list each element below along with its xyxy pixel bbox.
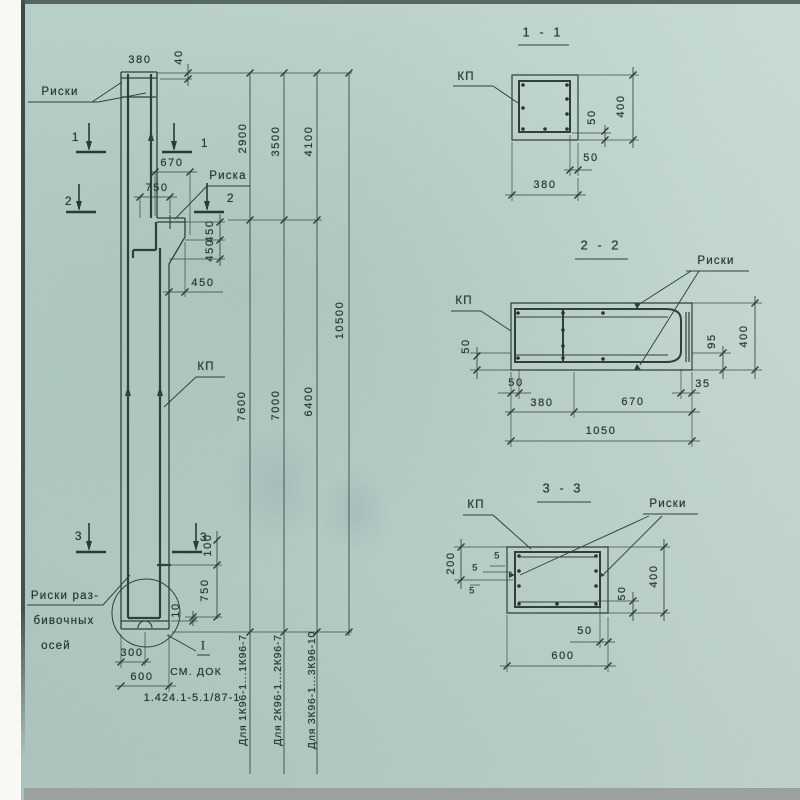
applicability-2: Для 2К96-1...2К96-7 xyxy=(272,634,284,746)
kp-label-1-1: КП xyxy=(457,71,474,83)
cut-mark-1-right: 1 xyxy=(201,136,209,150)
dim-2-2-height: 400 xyxy=(738,324,750,347)
doc-series-ref: 1.424.1-5.1/87-1 xyxy=(144,692,241,704)
dim-base-gap: 10 xyxy=(170,602,182,617)
dim-3-3-cover-right: 50 xyxy=(616,586,628,601)
dim-base-mark: 750 xyxy=(199,578,211,601)
cut-mark-1-left: 1 xyxy=(72,130,80,144)
kp-label-2-2: КП xyxy=(455,295,472,307)
corbel-riska-cross xyxy=(163,215,177,229)
dim-3-3-off-1: 5 xyxy=(494,551,500,562)
riska-notches-2-2 xyxy=(634,303,641,370)
dim-upper-2: 3500 xyxy=(270,126,282,157)
rebar-dots-3-3 xyxy=(517,554,598,606)
dim-total-length: 10500 xyxy=(334,301,346,340)
cut-mark-2-right: 2 xyxy=(227,191,235,205)
dim-base-mark-offset: 100 xyxy=(202,533,214,556)
axes-note-line3: осей xyxy=(41,640,71,652)
dim-base-half: 300 xyxy=(120,647,143,659)
section-1-1-title: 1 - 1 xyxy=(522,25,563,40)
dim-corbel-mark: 750 xyxy=(145,182,168,194)
dim-2-2-cover-bottom: 50 xyxy=(508,377,523,389)
section-3-3 xyxy=(507,547,608,613)
dim-3-3-width: 600 xyxy=(551,650,574,662)
cut-mark-3-left: 3 xyxy=(75,529,83,543)
drawing-linework xyxy=(0,0,800,800)
cut-mark-strokes xyxy=(79,123,207,549)
dim-3-3-off-3: 5 xyxy=(469,586,475,597)
dim-corbel-width: 670 xyxy=(160,157,183,169)
dim-upper-1: 2900 xyxy=(237,123,249,154)
section-3-3-inner-bars xyxy=(518,557,597,602)
rebar-dots-1-1 xyxy=(521,83,569,131)
scanned-drawing: Риски 380 40 1 1 2 2 3 3 670 Риска 750 4… xyxy=(0,0,800,800)
section-2-2-inner-bars xyxy=(515,317,668,355)
riski-label-2-2: Риски xyxy=(697,255,734,267)
dim-corbel-face: 450 xyxy=(191,277,214,289)
section-2-2-end-plate xyxy=(686,312,689,362)
riski-top-label: Риски xyxy=(41,86,78,98)
section-1-1-cage xyxy=(519,81,570,132)
section-3-3-cage xyxy=(515,552,600,607)
dim-3-3-mark-offset: 200 xyxy=(445,551,457,574)
cut-mark-2-left: 2 xyxy=(65,194,73,208)
dim-1-1-height: 400 xyxy=(615,94,627,117)
rebar-lines xyxy=(128,74,171,618)
tick-marks xyxy=(118,70,759,690)
dim-base-width: 600 xyxy=(130,671,153,683)
dim-2-2-plate-offset: 95 xyxy=(706,333,718,348)
axes-note-line1: Риски раз- xyxy=(31,590,99,602)
riska-label: Риска xyxy=(209,170,247,182)
dim-2-2-edge: 35 xyxy=(695,378,710,390)
cut-mark-bars xyxy=(66,152,224,552)
section-3-3-title: 3 - 3 xyxy=(542,481,583,496)
section-1-1 xyxy=(512,75,578,140)
rebar-dots-2-2 xyxy=(516,311,605,361)
dim-2-2-corbel-width: 670 xyxy=(621,396,644,408)
dim-1-1-cover-v: 50 xyxy=(586,109,598,124)
dim-3-3-off-2: 5 xyxy=(472,563,478,574)
axes-note-line2: бивочных xyxy=(33,615,94,627)
see-doc-note: СМ. ДОК xyxy=(170,666,222,678)
dim-lower-3: 6400 xyxy=(303,386,315,417)
axis-mark-semicircle xyxy=(138,621,152,628)
dim-2-2-total-width: 1050 xyxy=(586,425,617,437)
section-2-2 xyxy=(511,303,692,370)
dim-2-2-cover-left: 50 xyxy=(460,338,472,353)
dim-lower-1: 7600 xyxy=(236,391,248,422)
dim-top-offset: 40 xyxy=(173,49,185,64)
dim-3-3-height: 400 xyxy=(648,564,660,587)
leader-lines xyxy=(27,45,749,655)
applicability-1: Для 1К96-1...1К96-7 xyxy=(237,634,249,746)
dim-1-1-width: 380 xyxy=(533,179,556,191)
applicability-3: Для 3К96-1...3К96-10 xyxy=(306,631,318,749)
section-2-2-title: 2 - 2 xyxy=(580,238,621,253)
dim-2-2-col-width: 380 xyxy=(530,397,553,409)
riska-notches-3-3 xyxy=(509,572,605,578)
dim-corbel-h2: 450 xyxy=(204,238,216,261)
column-outline xyxy=(121,72,185,629)
dim-3-3-cover-bottom: 50 xyxy=(577,625,592,637)
dim-top-width: 380 xyxy=(128,54,151,66)
dim-lower-2: 7000 xyxy=(270,390,282,421)
riski-label-3-3: Риски xyxy=(649,498,686,510)
node-ref-mark: I xyxy=(201,639,205,654)
kp-elevation-label: КП xyxy=(197,361,214,373)
dim-1-1-cover-h: 50 xyxy=(583,152,598,164)
kp-label-3-3: КП xyxy=(467,499,484,511)
dim-upper-3: 4100 xyxy=(303,126,315,157)
